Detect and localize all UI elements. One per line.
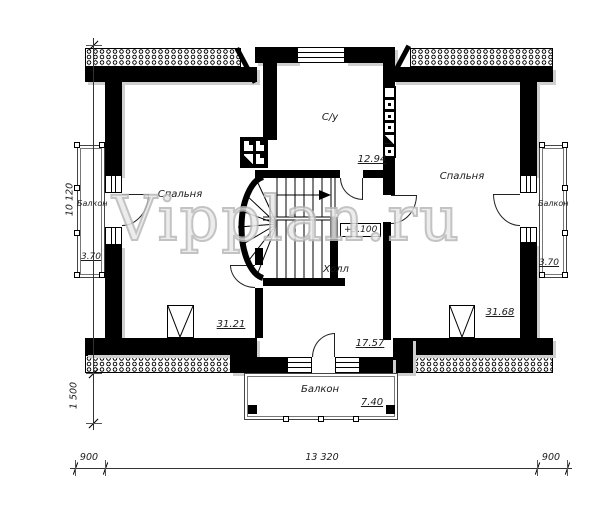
chimney-block	[240, 137, 268, 168]
roof-hatch-top-left	[85, 48, 241, 67]
balcony-post	[248, 405, 257, 414]
vent-cell-diagonal	[385, 135, 394, 144]
room-area-balcony-right: 3.70	[534, 258, 564, 268]
rail-post	[562, 142, 568, 148]
room-area-bathroom: 12.94	[352, 154, 392, 165]
rail-post	[99, 272, 105, 278]
room-label-bathroom: С/у	[300, 112, 360, 123]
rail-post	[74, 142, 80, 148]
flue-cell	[256, 154, 265, 164]
dim-text-height-total: 10 120	[65, 170, 76, 230]
roof-window-right	[449, 305, 475, 338]
flue-cell	[244, 141, 253, 151]
wall-bathroom-south-right	[363, 170, 383, 178]
room-label-balcony-bottom: Балкон	[280, 384, 360, 395]
vent-stack	[383, 86, 396, 158]
bathroom-window	[297, 47, 345, 63]
wall-tower-left	[255, 47, 297, 63]
roof-hatch-top-right	[410, 48, 553, 67]
rail-post	[539, 142, 545, 148]
wall-south-right	[393, 338, 553, 355]
vent-cell	[385, 123, 394, 132]
wall-bathroom-east-lower	[383, 222, 391, 340]
hall-window-2	[335, 357, 360, 373]
wall-hall-south-right	[360, 357, 393, 373]
wall-bathroom-west	[263, 63, 277, 140]
dim-extension	[86, 373, 102, 374]
dim-extension	[86, 45, 102, 46]
room-label-hall: Холл	[300, 264, 372, 275]
rail-post	[562, 230, 568, 236]
stair-direction-arrow	[319, 190, 331, 200]
wall-south-block-right	[393, 338, 413, 373]
door-arc-bottom-balcony	[312, 333, 335, 357]
floor-plan: Спальня 31.21 Спальня 31.68 С/у 12.94 Хо…	[0, 0, 600, 509]
rail-post	[74, 230, 80, 236]
wall-left-bedroom-east-lower	[255, 288, 263, 338]
room-label-balcony-left: Балкон	[77, 199, 105, 208]
wall-east-upper	[520, 82, 537, 175]
wall-south-block-left	[230, 338, 257, 373]
level-mark: +3.100	[340, 223, 381, 237]
hall-window-1	[287, 357, 312, 373]
wall-tower-right	[345, 47, 395, 63]
room-label-balcony-right: Балкон	[538, 199, 566, 208]
vent-cell	[385, 88, 394, 97]
rail-post	[283, 416, 289, 422]
rail-post	[562, 272, 568, 278]
room-label-bedroom-left: Спальня	[140, 189, 220, 200]
wall-north-right	[393, 67, 553, 82]
room-area-balcony-bottom: 7.40	[352, 397, 392, 408]
dim-text-width-total: 13 320	[282, 452, 362, 463]
rail-post	[74, 272, 80, 278]
rail-post	[539, 272, 545, 278]
dim-text-height-balcony: 1 500	[69, 366, 80, 426]
wall-west-upper	[105, 82, 122, 175]
roof-hatch-bottom-right	[412, 355, 553, 373]
dim-text-width-right: 900	[531, 452, 571, 463]
room-area-bedroom-left: 31.21	[211, 319, 251, 330]
rail-post	[99, 142, 105, 148]
rail-post	[562, 185, 568, 191]
dim-text-width-left: 900	[69, 452, 109, 463]
room-area-bedroom-right: 31.68	[480, 307, 520, 318]
east-window-1	[520, 175, 537, 193]
east-window-2	[520, 227, 537, 243]
door-arc-right-bedroom	[391, 195, 417, 224]
rail-post	[353, 416, 359, 422]
room-area-hall: 17.57	[350, 338, 390, 349]
rail-post	[318, 416, 324, 422]
room-label-bedroom-right: Спальня	[422, 171, 502, 182]
roof-hatch-bottom-left	[85, 355, 231, 373]
flue-cell	[256, 141, 265, 151]
west-window-2	[105, 227, 122, 245]
roof-window-left	[167, 305, 194, 338]
dim-extension	[86, 423, 102, 424]
vent-cell	[385, 100, 394, 109]
balcony-right-rail-inner	[542, 148, 564, 275]
dim-line-horizontal	[70, 468, 572, 469]
door-arc-right-balcony	[493, 194, 520, 226]
wall-north-left	[85, 67, 257, 82]
wall-hall-south-left	[257, 357, 287, 373]
west-window-1	[105, 175, 122, 193]
flue-cell-diagonal	[244, 154, 253, 164]
room-area-balcony-left: 3.70	[76, 252, 106, 262]
vent-cell	[385, 112, 394, 121]
